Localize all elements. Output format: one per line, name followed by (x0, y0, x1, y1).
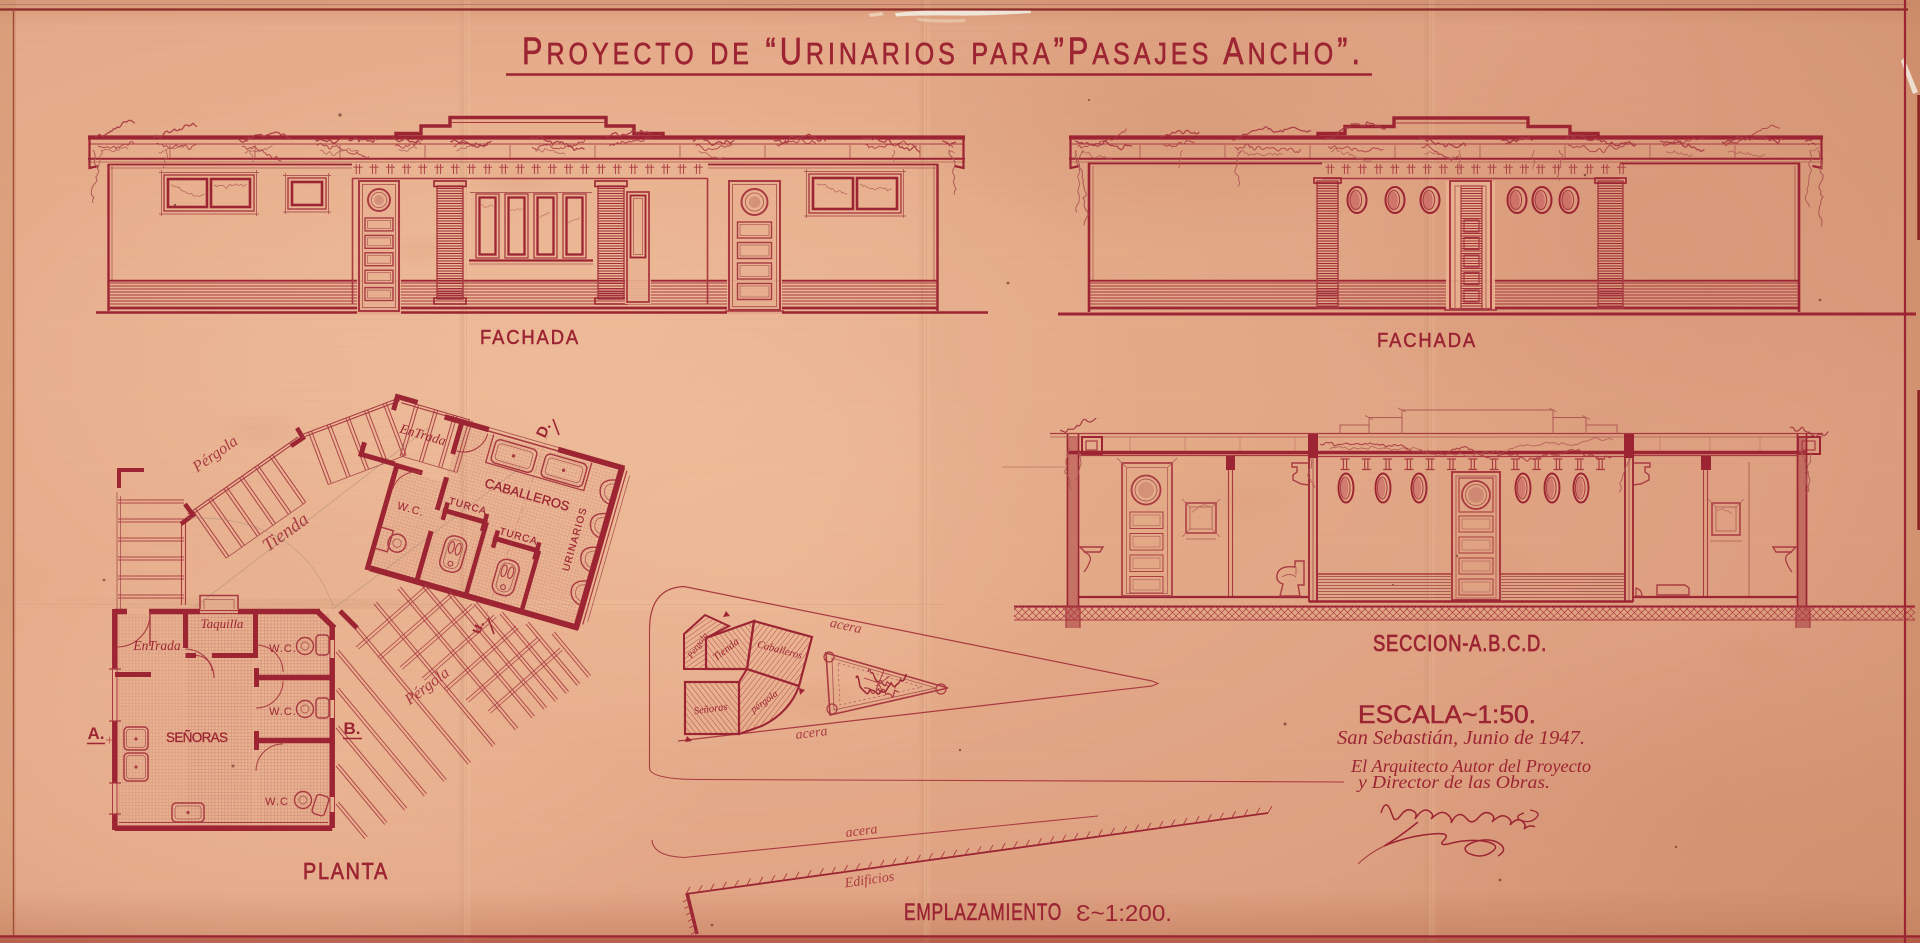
svg-text:W.C.: W.C. (269, 643, 297, 655)
svg-text:EMPLAZAMIENTO: EMPLAZAMIENTO (904, 899, 1062, 926)
svg-text:FACHADA: FACHADA (480, 327, 580, 349)
svg-text:PLANTA: PLANTA (303, 858, 389, 884)
svg-text:Taquilla: Taquilla (201, 616, 244, 631)
svg-text:y Director de las Obras.: y Director de las Obras. (1356, 772, 1550, 792)
svg-text:W.C: W.C (265, 796, 289, 808)
svg-text:Ɛ~1:200.: Ɛ~1:200. (1076, 900, 1172, 926)
svg-text:A.: A. (88, 724, 105, 743)
svg-text:W.C.: W.C. (269, 706, 297, 718)
svg-text:ESCALA~1:50.: ESCALA~1:50. (1358, 701, 1536, 729)
svg-text:SEÑORAS: SEÑORAS (166, 730, 230, 745)
svg-text:San Sebastián, Junio de 1947.: San Sebastián, Junio de 1947. (1337, 727, 1585, 749)
svg-text:EnTrada: EnTrada (132, 638, 181, 653)
svg-text:SECCION-A.B.C.D.: SECCION-A.B.C.D. (1373, 630, 1547, 656)
svg-text:PROYECTO DE “URINARIOS PARA”PA: PROYECTO DE “URINARIOS PARA”PASAJES ANCH… (522, 31, 1364, 73)
svg-text:FACHADA: FACHADA (1377, 330, 1477, 352)
